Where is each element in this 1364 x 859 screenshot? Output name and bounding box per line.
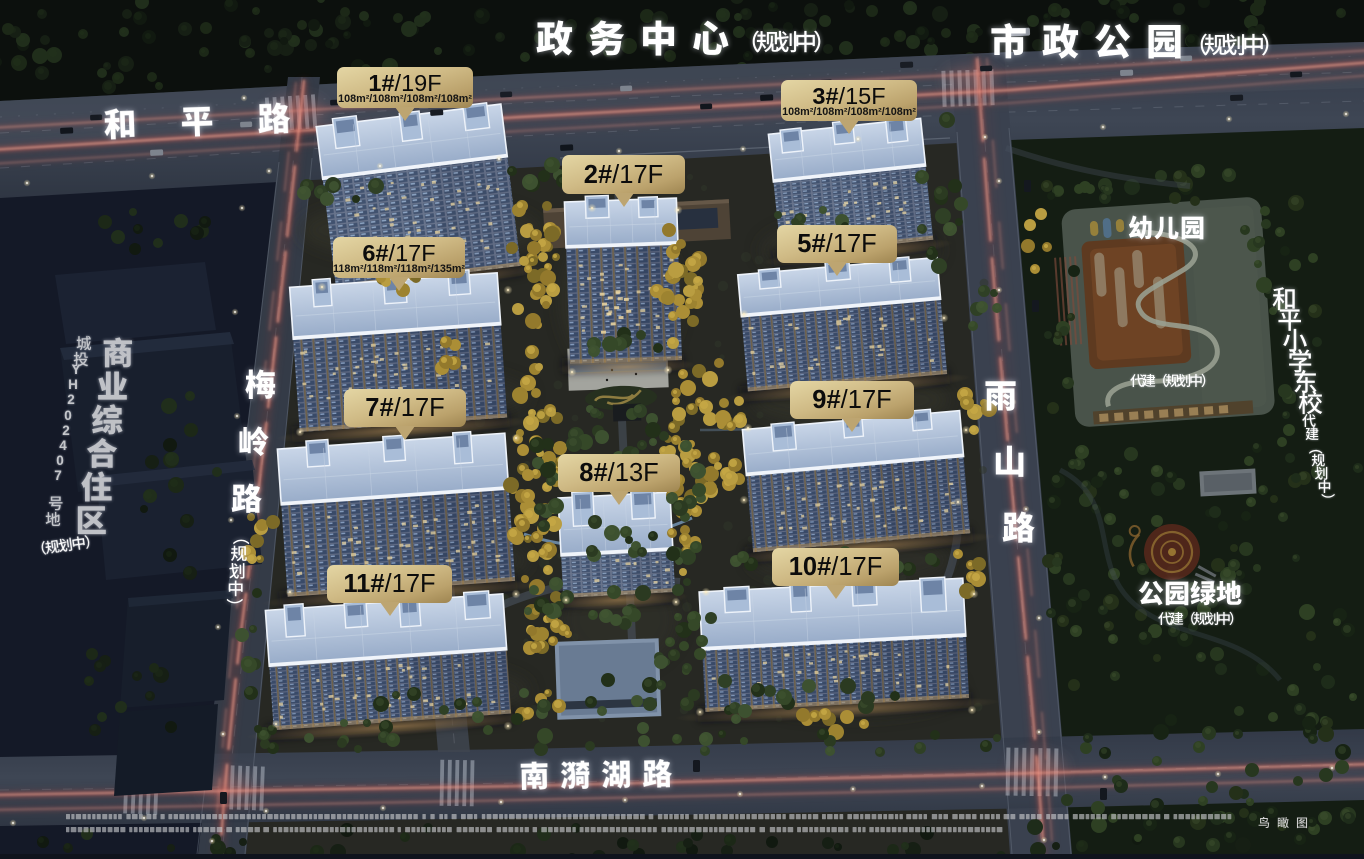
- svg-text:2: 2: [67, 392, 75, 407]
- svg-text:5#/17F: 5#/17F: [797, 230, 876, 258]
- svg-text:H: H: [68, 377, 78, 392]
- svg-text:10#/17F: 10#/17F: [789, 553, 883, 581]
- svg-text:Y: Y: [71, 362, 80, 377]
- svg-text:2#/17F: 2#/17F: [584, 161, 663, 189]
- svg-text:0: 0: [64, 408, 72, 423]
- svg-text:11#/17F: 11#/17F: [343, 570, 435, 598]
- svg-text:7#/17F: 7#/17F: [365, 394, 444, 422]
- svg-text:2: 2: [62, 423, 70, 438]
- svg-text:108m²/108m²/108m²/108m²: 108m²/108m²/108m²/108m²: [338, 93, 472, 105]
- svg-text:108m²/108m²/108m²/108m²: 108m²/108m²/108m²/108m²: [782, 106, 916, 118]
- svg-text:118m²/118m²/118m²/135m²: 118m²/118m²/118m²/135m²: [333, 263, 465, 275]
- svg-text:7: 7: [54, 468, 62, 483]
- svg-text:0: 0: [56, 453, 64, 468]
- svg-text:8#/13F: 8#/13F: [579, 459, 658, 487]
- svg-text:4: 4: [59, 438, 67, 453]
- svg-text:9#/17F: 9#/17F: [812, 386, 891, 414]
